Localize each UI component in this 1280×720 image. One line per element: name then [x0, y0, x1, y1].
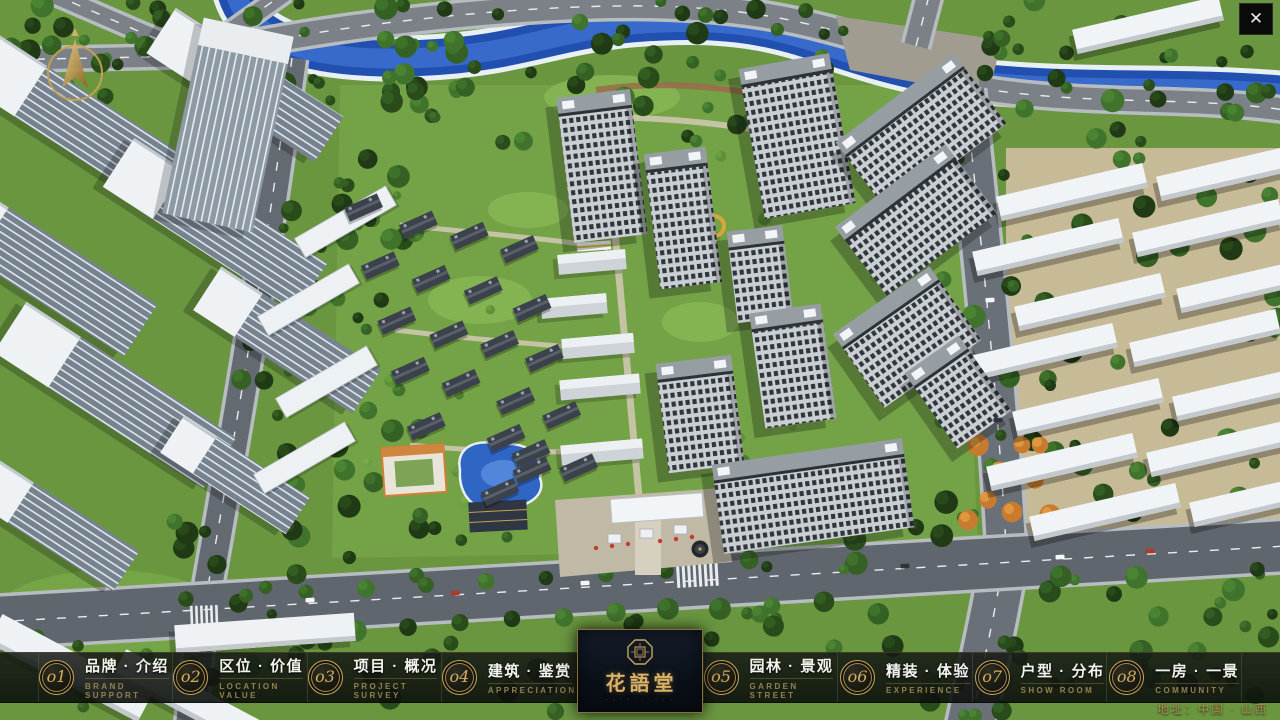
- tree-highlight: [699, 8, 708, 17]
- roof-equipment: [803, 308, 816, 318]
- tree-highlight: [240, 589, 248, 597]
- roof-equipment: [885, 443, 898, 453]
- tree-highlight: [1134, 196, 1146, 208]
- tree-highlight: [400, 619, 410, 629]
- tree-highlight: [150, 1, 159, 10]
- car: [305, 598, 314, 603]
- tree-highlight: [714, 10, 722, 18]
- tree-highlight: [1049, 70, 1059, 80]
- tree-highlight: [1247, 83, 1259, 95]
- tree-highlight: [326, 96, 332, 102]
- tree-highlight: [1102, 90, 1115, 103]
- car-body: [305, 598, 314, 603]
- tree-highlight: [428, 522, 436, 530]
- tree-highlight: [1268, 610, 1274, 616]
- menu-group-left: o1 品牌 · 介绍 BRAND SUPPORT o2 区位 · 价值 LOCA…: [38, 653, 577, 702]
- tree-highlight: [1111, 355, 1119, 363]
- tree-highlight: [339, 496, 352, 509]
- project-address: 地址：中国 · 山西: [1157, 701, 1268, 717]
- menu-item-number-badge: o5: [704, 660, 739, 695]
- tree-highlight: [25, 18, 34, 27]
- project-logo-panel[interactable]: 花語堂 · · · · · · · · · ·: [577, 629, 703, 713]
- tree-highlight: [607, 604, 618, 615]
- tree-highlight: [393, 192, 398, 197]
- tree-highlight: [413, 509, 422, 518]
- tree-highlight: [1136, 136, 1142, 142]
- tree-highlight: [705, 632, 713, 640]
- tree-highlight: [715, 70, 722, 77]
- tree-highlight: [333, 195, 345, 207]
- tree-highlight: [358, 580, 368, 590]
- tree-highlight: [244, 7, 255, 18]
- tree-highlight: [1251, 563, 1259, 571]
- menu-item-labels: 一房 · 一景 COMMUNITY: [1155, 660, 1239, 696]
- car: [985, 298, 994, 303]
- compass-north-icon: [42, 28, 108, 106]
- tree-highlight: [453, 467, 459, 473]
- tree-highlight: [1215, 598, 1221, 604]
- tree-highlight: [639, 68, 651, 80]
- tree-highlight: [687, 23, 699, 35]
- tree-highlight: [771, 24, 778, 31]
- tree-highlight: [1165, 49, 1173, 57]
- tree-highlight: [452, 615, 461, 624]
- menu-item-labels: 园林 · 景观 GARDEN STREET: [750, 655, 838, 700]
- autumn-tree-highlight: [960, 512, 970, 522]
- car-body: [580, 581, 589, 586]
- tree-highlight: [556, 609, 566, 619]
- menu-item-label-en: LOCATION VALUE: [219, 682, 306, 700]
- project-logo-subtitle: · · · · · · · · · ·: [606, 698, 673, 703]
- tree-highlight: [710, 599, 722, 611]
- tree-highlight: [505, 612, 514, 621]
- tree-highlight: [540, 572, 548, 580]
- tree-highlight: [548, 704, 557, 713]
- tree-highlight: [1144, 80, 1150, 86]
- menu-item-number-badge: o1: [39, 660, 74, 695]
- red-banner: [674, 537, 678, 541]
- tree-highlight: [1040, 581, 1052, 593]
- tree-highlight: [612, 33, 619, 40]
- car-body: [993, 418, 1002, 423]
- red-banner: [610, 544, 614, 548]
- tree-highlight: [1223, 579, 1236, 592]
- tree-highlight: [617, 25, 625, 33]
- menu-item-number-badge: o2: [173, 660, 208, 695]
- tree-highlight: [839, 565, 845, 571]
- tree-highlight: [1107, 587, 1116, 596]
- tree-highlight: [931, 525, 944, 538]
- pavilion: [468, 500, 527, 533]
- tree-highlight: [396, 37, 408, 49]
- tree-highlight: [998, 636, 1006, 644]
- tree-highlight: [334, 178, 340, 184]
- tree-highlight: [374, 293, 382, 301]
- tree-highlight: [1134, 153, 1141, 160]
- gate-booth: [608, 534, 621, 543]
- tree-highlight: [1240, 621, 1246, 627]
- car-body: [450, 591, 459, 596]
- tree-highlight: [742, 608, 749, 615]
- roof-equipment: [688, 151, 701, 160]
- tree-highlight: [978, 66, 987, 75]
- roof-equipment: [562, 100, 575, 109]
- tree-highlight: [1114, 151, 1124, 161]
- tree-highlight: [1072, 215, 1084, 227]
- tree-highlight: [427, 41, 433, 47]
- tree-highlight: [361, 324, 367, 330]
- tree-highlight: [1016, 100, 1026, 110]
- tree-highlight: [1008, 280, 1015, 287]
- menu-bar-spacer-left: [0, 653, 38, 702]
- menu-item-label-zh: 项目 · 概况: [354, 655, 438, 679]
- menu-item-labels: 建筑 · 鉴赏 APPRECIATION: [488, 660, 577, 696]
- tree-highlight: [288, 565, 299, 576]
- tree-highlight: [314, 78, 321, 85]
- menu-item-label-en: GARDEN STREET: [750, 682, 838, 700]
- compass-needle: [62, 39, 88, 88]
- menu-item-label-zh: 精装 · 体验: [886, 660, 970, 684]
- tree-highlight: [1259, 627, 1271, 639]
- tree-highlight: [456, 535, 462, 541]
- menu-item-label-zh: 品牌 · 介绍: [85, 655, 169, 679]
- tree-highlight: [479, 574, 488, 583]
- tree-highlight: [208, 556, 219, 567]
- tree-highlight: [675, 6, 684, 15]
- menu-item-labels: 品牌 · 介绍 BRAND SUPPORT: [85, 655, 172, 700]
- tree-highlight: [335, 460, 347, 472]
- tree-highlight: [984, 32, 990, 38]
- tree-highlight: [343, 552, 350, 559]
- tree-highlight: [994, 31, 1003, 40]
- tree-highlight: [1149, 607, 1160, 618]
- tree-highlight: [1040, 371, 1050, 381]
- menu-item-o4[interactable]: o4 建筑 · 鉴赏 APPRECIATION: [441, 653, 577, 702]
- car-body: [900, 564, 909, 569]
- tree-highlight: [682, 130, 689, 137]
- tree-highlight: [382, 91, 394, 103]
- car: [993, 418, 1002, 423]
- tree-highlight: [716, 151, 722, 157]
- tree-highlight: [959, 710, 965, 716]
- tree-highlight: [526, 67, 532, 73]
- pavilion-roof: [468, 500, 527, 533]
- tree-highlight: [300, 27, 306, 33]
- tree-highlight: [839, 26, 845, 32]
- tree-highlight: [964, 306, 977, 319]
- tree-highlight: [382, 421, 394, 433]
- roof-equipment: [765, 230, 778, 239]
- tree-highlight: [1087, 129, 1098, 140]
- fountain-center: [698, 547, 701, 550]
- tree-highlight: [762, 562, 768, 568]
- tree-highlight: [168, 515, 177, 524]
- menu-item-label-zh: 户型 · 分布: [1021, 660, 1105, 684]
- tree-highlight: [1013, 44, 1019, 50]
- tree-highlight: [496, 136, 504, 144]
- menu-bar-spacer-right: [1241, 653, 1280, 702]
- menu-item-labels: 户型 · 分布 SHOW ROOM: [1021, 660, 1105, 696]
- tree-highlight: [658, 599, 670, 611]
- red-banner: [626, 542, 630, 546]
- tree-highlight: [1004, 16, 1011, 23]
- tree-highlight: [383, 71, 391, 79]
- gate-booth: [640, 529, 653, 538]
- close-button[interactable]: ✕: [1239, 3, 1273, 35]
- car-body: [1055, 555, 1064, 560]
- tree-highlight: [200, 526, 207, 533]
- menu-item-number-badge: o6: [840, 660, 875, 695]
- tree-highlight: [1217, 57, 1223, 63]
- tree-highlight: [438, 2, 447, 11]
- menu-item-labels: 区位 · 价值 LOCATION VALUE: [219, 655, 306, 700]
- tree-highlight: [378, 32, 388, 42]
- project-logo-title: 花語堂: [606, 667, 678, 696]
- tree-highlight: [799, 4, 807, 12]
- tree-highlight: [568, 77, 578, 87]
- menu-group-right: o5 园林 · 景观 GARDEN STREET o6 精装 · 体验 EXPE…: [703, 653, 1242, 702]
- menu-item-label-zh: 建筑 · 鉴赏: [488, 660, 572, 684]
- tree-highlight: [515, 133, 525, 143]
- autumn-tree-highlight: [1004, 504, 1014, 514]
- tree-highlight: [457, 79, 467, 89]
- tree-highlight: [486, 306, 491, 311]
- tree-highlight: [819, 29, 825, 35]
- menu-item-number-badge: o8: [1109, 660, 1144, 695]
- tree-highlight: [309, 75, 315, 81]
- tree-highlight: [752, 606, 762, 616]
- estate-lawn: [488, 192, 568, 228]
- menu-item-labels: 项目 · 概况 PROJECT SURVEY: [354, 655, 441, 700]
- tree-highlight: [1051, 567, 1063, 579]
- car: [1055, 555, 1064, 560]
- car: [580, 581, 589, 586]
- tree-highlight: [1070, 440, 1076, 446]
- roof-equipment: [732, 234, 745, 243]
- roof-equipment: [612, 94, 625, 103]
- tree-highlight: [359, 150, 370, 161]
- tree-highlight: [407, 83, 417, 93]
- tree-highlight: [353, 313, 359, 319]
- tree-highlight: [492, 9, 499, 16]
- tree-highlight: [634, 97, 645, 108]
- tree-highlight: [230, 595, 240, 605]
- tree-highlight: [764, 617, 776, 629]
- seal-icon: [627, 639, 653, 665]
- tree-highlight: [232, 370, 243, 381]
- tree-highlight: [126, 33, 133, 40]
- tree-highlight: [577, 64, 587, 74]
- car: [1145, 549, 1154, 554]
- menu-item-label-en: BRAND SUPPORT: [85, 682, 172, 700]
- tree-highlight: [703, 102, 709, 108]
- tree-highlight: [365, 473, 376, 484]
- tree-highlight: [388, 166, 401, 179]
- menu-item-o1[interactable]: o1 品牌 · 介绍 BRAND SUPPORT: [38, 653, 172, 702]
- roof-equipment: [649, 156, 662, 165]
- tree-highlight: [1262, 85, 1270, 93]
- app-window: ✕ o1 品牌 · 介绍 BRAND SUPPORT o2 区位 · 价值 LO…: [0, 0, 1280, 720]
- roof-equipment: [717, 466, 730, 476]
- tree-highlight: [445, 32, 456, 43]
- tree-highlight: [592, 34, 604, 46]
- tree-highlight: [282, 201, 294, 213]
- red-banner: [594, 546, 598, 550]
- tree-highlight: [999, 170, 1005, 176]
- tree-highlight: [1094, 485, 1105, 496]
- car-body: [1145, 549, 1154, 554]
- tree-highlight: [996, 430, 1002, 436]
- menu-item-o3[interactable]: o3 项目 · 概况 PROJECT SURVEY: [307, 653, 441, 702]
- highrise-tower: [737, 304, 837, 438]
- menu-item-labels: 精装 · 体验 EXPERIENCE: [886, 660, 970, 696]
- tree-highlight: [430, 112, 436, 118]
- tree-highlight: [1126, 567, 1139, 580]
- menu-item-label-zh: 区位 · 价值: [219, 655, 303, 679]
- tree-highlight: [1227, 105, 1237, 115]
- roof-equipment: [661, 366, 674, 375]
- menu-item-label-zh: 园林 · 景观: [750, 655, 834, 679]
- roof-equipment: [755, 315, 768, 325]
- menu-item-o2[interactable]: o2 区位 · 价值 LOCATION VALUE: [172, 653, 306, 702]
- menu-item-label-en: COMMUNITY: [1155, 686, 1226, 695]
- tree-highlight: [1045, 380, 1051, 386]
- bottom-menu-bar: o1 品牌 · 介绍 BRAND SUPPORT o2 区位 · 价值 LOCA…: [0, 652, 1280, 703]
- tree-highlight: [410, 569, 418, 577]
- menu-item-label-zh: 一房 · 一景: [1155, 660, 1239, 684]
- tree-highlight: [1150, 92, 1159, 101]
- red-banner: [658, 539, 662, 543]
- car-body: [985, 298, 994, 303]
- tree-highlight: [1204, 608, 1214, 618]
- red-banner: [690, 535, 694, 539]
- tree-highlight: [395, 64, 407, 76]
- menu-item-o5[interactable]: o5 园林 · 景观 GARDEN STREET: [703, 653, 838, 702]
- tree-highlight: [869, 604, 881, 616]
- compass-graphic: [42, 28, 108, 106]
- tree-highlight: [764, 598, 773, 607]
- tree-highlight: [279, 224, 285, 230]
- tree-highlight: [815, 592, 826, 603]
- masterplan-3d-view[interactable]: [0, 0, 1280, 720]
- tree-highlight: [1241, 46, 1248, 53]
- tree-highlight: [444, 636, 452, 644]
- tree-highlight: [278, 444, 289, 455]
- tree-highlight: [1217, 84, 1227, 94]
- tree-highlight: [419, 578, 428, 587]
- menu-item-label-en: PROJECT SURVEY: [354, 682, 441, 700]
- menu-item-label-en: EXPERIENCE: [886, 686, 962, 695]
- menu-item-o8[interactable]: o8 一房 · 一景 COMMUNITY: [1106, 653, 1241, 702]
- tree-highlight: [73, 641, 79, 647]
- tree-highlight: [273, 410, 279, 416]
- tree-highlight: [502, 532, 508, 538]
- car: [450, 591, 459, 596]
- tree-highlight: [1110, 122, 1119, 131]
- tree-highlight: [468, 61, 476, 69]
- tree-highlight: [883, 636, 895, 648]
- tree-highlight: [299, 585, 307, 593]
- tree-highlight: [624, 617, 633, 626]
- tree-highlight: [846, 553, 859, 566]
- tree-highlight: [260, 581, 267, 588]
- clubhouse: [381, 444, 446, 496]
- tree-highlight: [112, 59, 118, 65]
- roof-equipment: [714, 359, 727, 368]
- tree-highlight: [936, 492, 949, 505]
- clubhouse-court: [394, 459, 434, 488]
- tree-highlight: [645, 46, 655, 56]
- tree-highlight: [1060, 46, 1068, 54]
- tree-highlight: [256, 372, 266, 382]
- compass-tick: [72, 28, 79, 36]
- tree-highlight: [690, 135, 697, 142]
- gate-booth: [674, 525, 687, 534]
- tree-highlight: [1162, 419, 1172, 429]
- car: [900, 564, 909, 569]
- tree-highlight: [179, 592, 187, 600]
- menu-item-number-badge: o3: [308, 660, 343, 695]
- tree-highlight: [747, 0, 758, 11]
- tree-highlight: [360, 403, 370, 413]
- tree-highlight: [267, 610, 273, 616]
- menu-item-label-en: SHOW ROOM: [1021, 686, 1095, 695]
- tree-highlight: [993, 702, 1004, 713]
- menu-item-o6[interactable]: o6 精装 · 体验 EXPERIENCE: [837, 653, 972, 702]
- tree-highlight: [687, 56, 694, 63]
- menu-item-o7[interactable]: o7 户型 · 分布 SHOW ROOM: [972, 653, 1107, 702]
- tree-highlight: [826, 640, 835, 649]
- menu-item-number-badge: o7: [975, 660, 1010, 695]
- tree-highlight: [1262, 188, 1271, 197]
- tree-highlight: [573, 15, 582, 24]
- tree-highlight: [381, 229, 393, 241]
- menu-item-label-en: APPRECIATION: [488, 686, 577, 695]
- menu-item-number-badge: o4: [442, 660, 477, 695]
- tree-highlight: [363, 458, 368, 463]
